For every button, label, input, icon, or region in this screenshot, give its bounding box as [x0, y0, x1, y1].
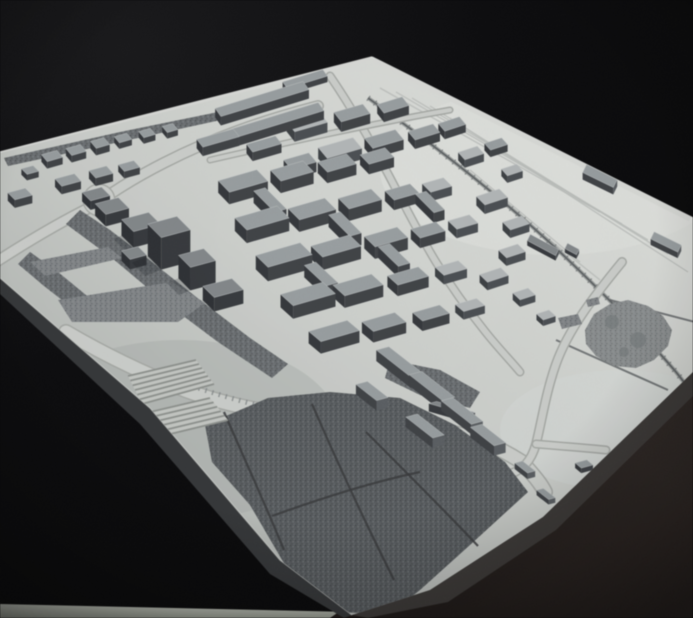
photo-grain	[0, 0, 693, 618]
photo-of-architectural-model	[0, 0, 693, 618]
model-scene-canvas	[0, 0, 693, 618]
